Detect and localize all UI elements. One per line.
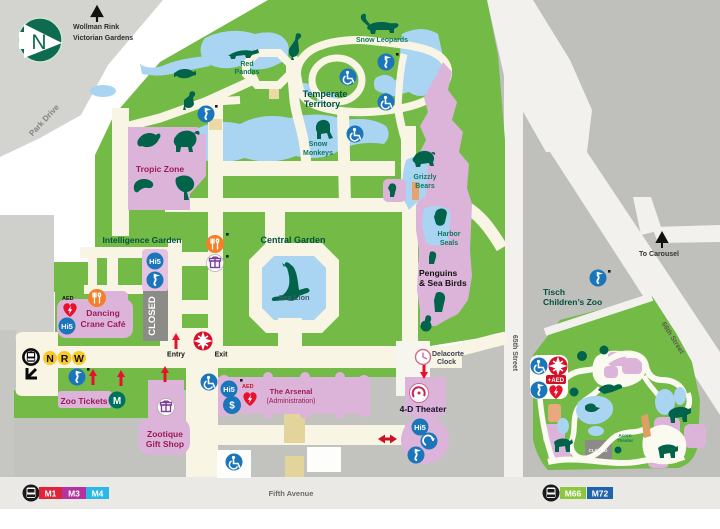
svg-text:Pandas: Pandas: [235, 69, 260, 76]
svg-text:Zoo Tickets: Zoo Tickets: [60, 396, 107, 406]
svg-text:M3: M3: [68, 489, 80, 499]
svg-text:Bears: Bears: [415, 183, 435, 190]
svg-text:Exit: Exit: [215, 352, 229, 359]
svg-text:Zootique: Zootique: [147, 429, 183, 439]
svg-text:Grizzly: Grizzly: [414, 174, 437, 181]
svg-text:Red: Red: [240, 61, 253, 68]
svg-text:Crane Café: Crane Café: [81, 319, 126, 329]
svg-text:Children’s Zoo: Children’s Zoo: [543, 297, 602, 307]
svg-text:The Arsenal: The Arsenal: [270, 387, 313, 396]
svg-text:CLOSED: CLOSED: [147, 296, 158, 336]
svg-text:Central Garden: Central Garden: [260, 235, 325, 245]
svg-text:Clock: Clock: [437, 359, 456, 366]
svg-text:Fifth Avenue: Fifth Avenue: [269, 489, 314, 498]
svg-text:Penguins: Penguins: [419, 268, 458, 278]
svg-text:Dancing: Dancing: [86, 308, 120, 318]
svg-text:Wollman Rink: Wollman Rink: [73, 24, 119, 31]
svg-text:Sea Lion: Sea Lion: [278, 293, 310, 302]
svg-text:M4: M4: [92, 489, 104, 499]
svg-text:W: W: [74, 353, 84, 365]
svg-text:To Carousel: To Carousel: [639, 251, 679, 258]
svg-text:Snow: Snow: [309, 141, 328, 148]
svg-text:M: M: [113, 396, 121, 407]
svg-text:& Sea Birds: & Sea Birds: [419, 278, 467, 288]
svg-text:Seals: Seals: [440, 240, 458, 247]
svg-text:Territory: Territory: [304, 99, 340, 109]
svg-text:Delacorte: Delacorte: [432, 351, 464, 358]
svg-text:AED: AED: [62, 296, 74, 302]
svg-text:M66: M66: [565, 489, 582, 499]
svg-text:N: N: [31, 31, 46, 54]
svg-text:4-D Theater: 4-D Theater: [400, 404, 447, 414]
svg-text:R: R: [61, 353, 69, 365]
svg-text:+AED: +AED: [548, 378, 565, 384]
svg-text:M72: M72: [592, 489, 609, 499]
svg-text:Harbor: Harbor: [438, 231, 461, 238]
svg-text:Entry: Entry: [167, 352, 185, 359]
svg-text:Monkeys: Monkeys: [303, 150, 333, 157]
svg-text:AED: AED: [242, 384, 254, 390]
svg-text:M1: M1: [45, 489, 57, 499]
svg-text:Intelligence Garden: Intelligence Garden: [103, 235, 182, 245]
svg-text:Theater: Theater: [617, 438, 634, 443]
svg-text:(Administration): (Administration): [266, 398, 315, 405]
svg-text:Tropic Zone: Tropic Zone: [136, 164, 184, 174]
svg-text:Tisch: Tisch: [543, 287, 565, 297]
svg-text:65th Street: 65th Street: [511, 335, 518, 372]
svg-text:Temperate: Temperate: [303, 89, 348, 99]
svg-text:Victorian Gardens: Victorian Gardens: [73, 35, 133, 42]
svg-text:Snow Leopards: Snow Leopards: [356, 37, 408, 44]
svg-text:Gift Shop: Gift Shop: [146, 439, 184, 449]
svg-text:N: N: [46, 353, 54, 365]
